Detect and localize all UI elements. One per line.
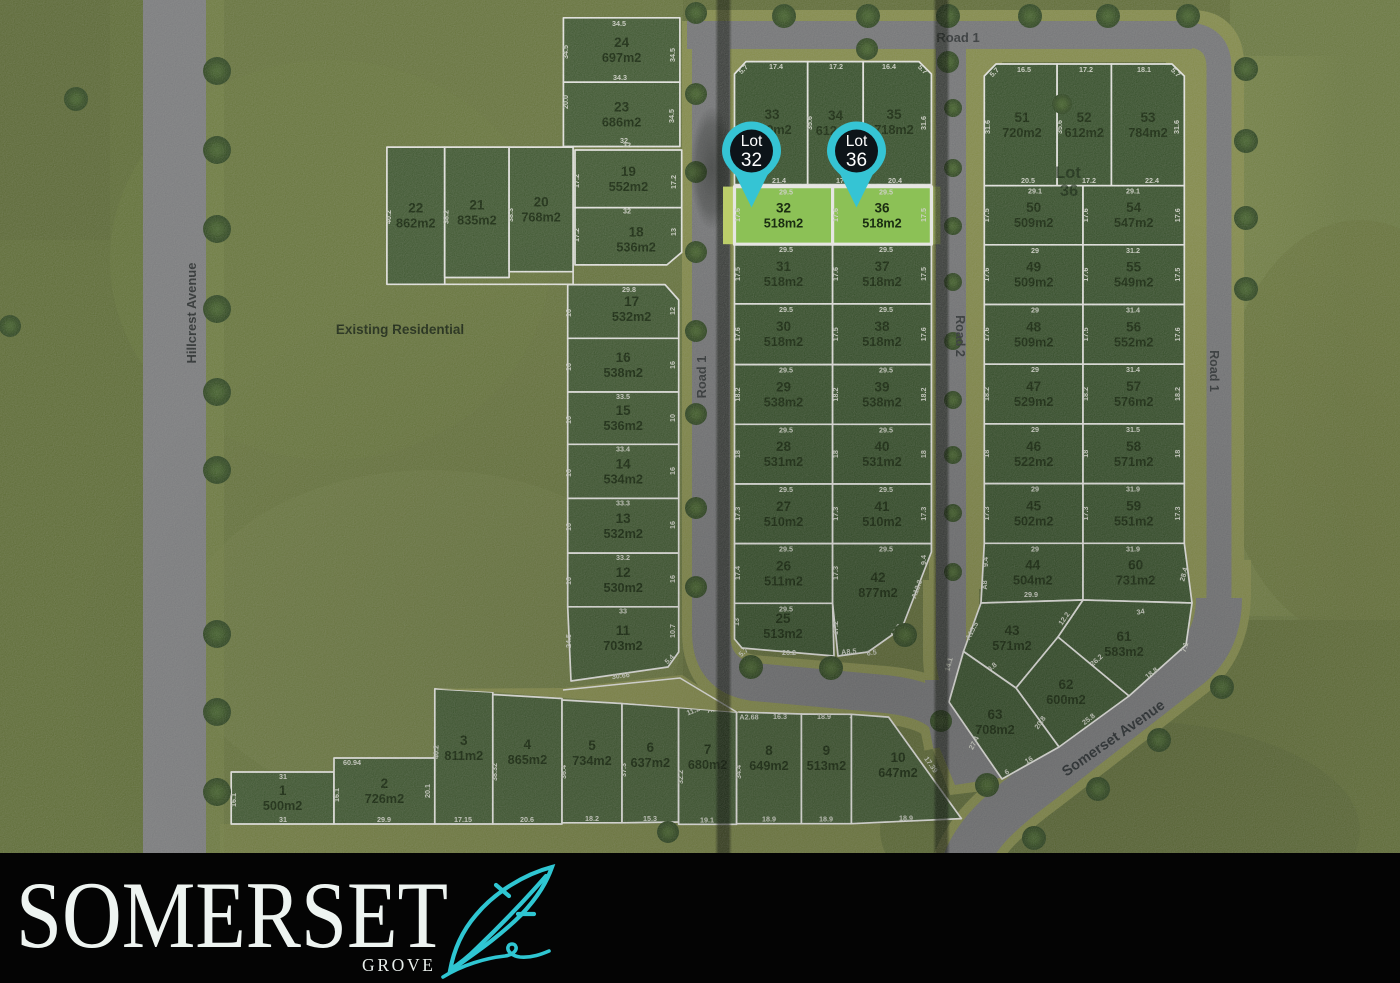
svg-text:518m2: 518m2 xyxy=(764,216,804,230)
svg-text:36: 36 xyxy=(874,200,890,215)
svg-text:SOMERSET: SOMERSET xyxy=(16,862,448,968)
svg-text:Lot: Lot xyxy=(741,133,763,150)
svg-text:17.6: 17.6 xyxy=(733,208,742,222)
svg-text:29.5: 29.5 xyxy=(879,188,893,197)
svg-text:32: 32 xyxy=(776,200,791,215)
svg-text:17.6: 17.6 xyxy=(831,208,840,222)
svg-text:17.5: 17.5 xyxy=(919,208,928,222)
svg-text:GROVE: GROVE xyxy=(362,955,440,975)
svg-text:36: 36 xyxy=(846,150,867,171)
svg-text:32: 32 xyxy=(741,150,762,171)
svg-text:29.5: 29.5 xyxy=(779,188,793,197)
svg-text:518m2: 518m2 xyxy=(862,216,902,230)
svg-text:Lot: Lot xyxy=(846,133,868,150)
